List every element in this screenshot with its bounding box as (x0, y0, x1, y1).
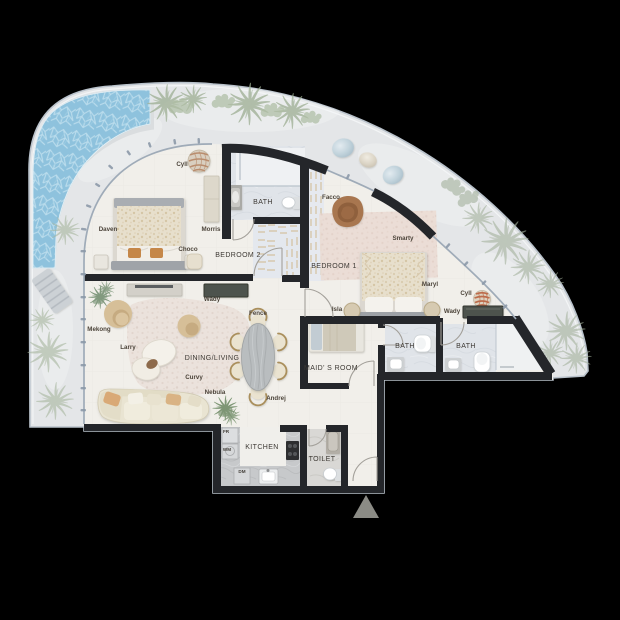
svg-text:BATH: BATH (253, 199, 273, 206)
svg-text:BATH: BATH (456, 343, 476, 350)
svg-text:WM: WM (223, 447, 231, 452)
svg-text:Choco: Choco (178, 246, 197, 253)
svg-text:BATH: BATH (395, 343, 415, 350)
svg-text:Cyll: Cyll (460, 290, 472, 297)
svg-text:Maryl: Maryl (422, 281, 438, 288)
svg-text:Curvy: Curvy (185, 374, 203, 381)
svg-text:Andrej: Andrej (266, 395, 286, 402)
svg-text:DINING/LIVING: DINING/LIVING (185, 355, 240, 362)
svg-text:Daven: Daven (99, 226, 118, 233)
svg-text:Morris: Morris (202, 226, 221, 233)
svg-text:MAID' S ROOM: MAID' S ROOM (304, 365, 358, 372)
svg-text:Cyll: Cyll (176, 161, 188, 168)
svg-text:KITCHEN: KITCHEN (245, 444, 279, 451)
svg-text:Facco: Facco (322, 194, 340, 201)
svg-text:TOILET: TOILET (309, 456, 336, 463)
svg-text:DM: DM (238, 469, 245, 474)
svg-text:Wady: Wady (444, 308, 461, 315)
svg-text:Nebula: Nebula (205, 389, 226, 396)
svg-text:Fence: Fence (249, 310, 267, 317)
svg-text:Wady: Wady (204, 296, 221, 303)
svg-text:BEDROOM 2: BEDROOM 2 (215, 252, 261, 259)
svg-text:Isla: Isla (332, 306, 343, 313)
svg-text:Mekong: Mekong (87, 326, 111, 333)
svg-text:Larry: Larry (120, 344, 136, 351)
svg-text:FR: FR (223, 429, 230, 434)
svg-text:BEDROOM 1: BEDROOM 1 (311, 263, 357, 270)
svg-text:Smarty: Smarty (393, 235, 415, 242)
